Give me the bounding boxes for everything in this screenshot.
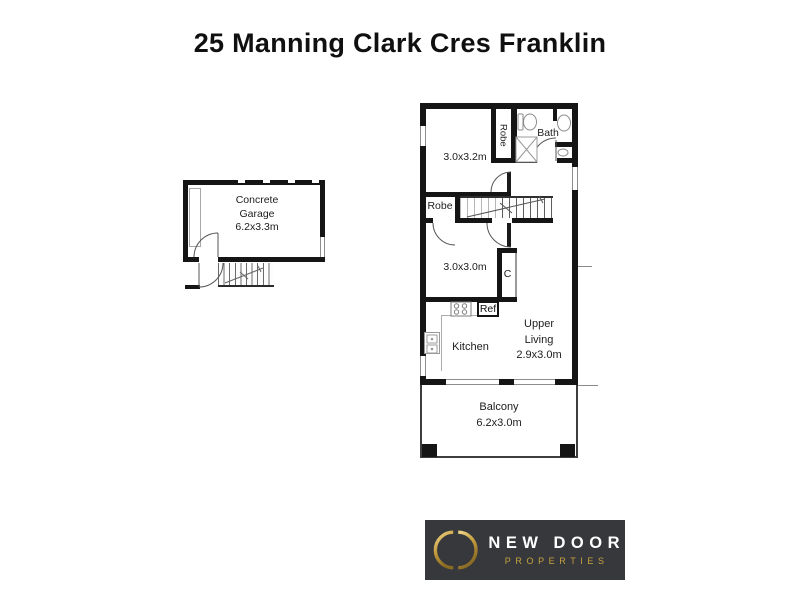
room-label-line: Living: [503, 333, 575, 349]
window: [320, 237, 325, 257]
room-label-robe2: Robe: [424, 200, 456, 214]
wall: [218, 257, 325, 262]
wall-notch: [238, 180, 245, 183]
floorplan-page: 25 Manning Clark Cres Franklin Concrete …: [0, 0, 800, 600]
room-label-line: 6.2x3.0m: [440, 415, 558, 431]
room-label-line: Concrete: [202, 194, 312, 208]
logo-tagline: PROPERTIES: [505, 556, 609, 566]
wall: [183, 180, 325, 185]
wall: [420, 379, 446, 385]
room-label-line: 6.2x3.3m: [202, 221, 312, 235]
window: [420, 126, 426, 146]
wall: [512, 218, 553, 223]
new-door-logo-icon: [432, 522, 479, 578]
room-label-kitchen: Kitchen: [438, 341, 503, 355]
wall-notch: [288, 180, 295, 183]
balcony-rail: [420, 456, 578, 458]
room-label-bedroom2: 3.0x3.0m: [430, 261, 500, 275]
wall: [183, 257, 199, 262]
wall: [455, 218, 492, 223]
room-label-line: Upper: [503, 317, 575, 333]
roof-line: [578, 385, 598, 386]
room-label-line: Balcony: [440, 399, 558, 415]
wall: [185, 285, 200, 289]
room-label-living: Upper Living 2.9x3.0m: [503, 317, 575, 364]
counter-edge: [441, 315, 477, 316]
agency-logo: NEW DOOR PROPERTIES: [425, 520, 625, 580]
room-label-cupboard: C: [500, 268, 515, 282]
door-leaf: [507, 172, 511, 192]
wall: [511, 109, 517, 163]
cupboard-edge: [515, 253, 517, 300]
window: [420, 356, 426, 376]
wall: [420, 297, 517, 302]
stairs: [218, 263, 274, 287]
logo-text: NEW DOOR PROPERTIES: [488, 534, 625, 566]
logo-brand-name: NEW DOOR: [488, 534, 625, 553]
fridge-box: Ref: [477, 301, 499, 317]
wall: [557, 158, 572, 163]
door-leaf: [507, 223, 511, 247]
basin-icon: [558, 149, 568, 156]
wall: [555, 379, 578, 385]
room-label-bedroom1: 3.0x3.2m: [430, 151, 500, 165]
room-label-balcony: Balcony 6.2x3.0m: [440, 399, 558, 431]
wall-notch: [263, 180, 270, 183]
plan-linework: [0, 0, 800, 600]
window: [514, 379, 555, 385]
window: [572, 167, 578, 190]
room-label-line: Garage: [202, 208, 312, 222]
room-label-bath: Bath: [530, 127, 566, 141]
wall: [497, 248, 517, 253]
wall: [183, 180, 188, 253]
wall-notch: [312, 180, 319, 183]
page-title: 25 Manning Clark Cres Franklin: [0, 28, 800, 59]
balcony-post: [422, 444, 437, 457]
cooktop-icon: [451, 302, 471, 316]
room-label-garage: Concrete Garage 6.2x3.3m: [202, 194, 312, 235]
garage-door-panel: [189, 188, 201, 247]
fridge-label: Ref: [480, 303, 496, 315]
balcony-rail: [576, 385, 578, 458]
room-label-robe1: Robe: [496, 115, 510, 155]
wall: [320, 180, 325, 237]
wall: [553, 109, 557, 121]
room-label-line: 2.9x3.0m: [503, 348, 575, 364]
wall: [555, 142, 572, 147]
stairs-lower-flight: [460, 198, 497, 218]
wall: [426, 218, 433, 223]
wall: [499, 379, 514, 385]
balcony-post: [560, 444, 575, 457]
window: [446, 379, 499, 385]
roof-line: [578, 266, 592, 267]
